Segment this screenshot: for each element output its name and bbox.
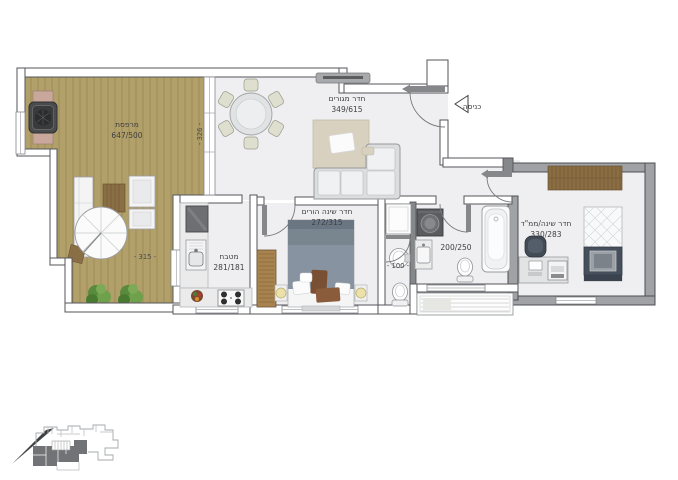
floor-plan-svg: מרפסת 647/500 חדר מגורים 349/615 מטבח 28… bbox=[0, 0, 678, 480]
safe-room-size: 330/283 bbox=[530, 230, 561, 239]
balcony-label: מרפסת bbox=[115, 120, 139, 129]
bathroom-vanity bbox=[415, 240, 432, 269]
safe-room-label: חדר שינה/ממ"ד bbox=[521, 219, 572, 228]
living-room-size: 349/615 bbox=[331, 105, 362, 114]
key-plan bbox=[12, 425, 118, 470]
headboard-panel bbox=[548, 166, 622, 190]
entry-niche bbox=[427, 60, 448, 86]
monitor bbox=[529, 261, 542, 270]
balcony-size: 647/500 bbox=[111, 131, 142, 140]
stove bbox=[218, 290, 244, 306]
fruit-bowl bbox=[191, 290, 203, 302]
floor-plan-page: מרפסת 647/500 חדר מגורים 349/615 מטבח 28… bbox=[0, 0, 678, 480]
master-bedroom-label: חדר שינה הורים bbox=[302, 207, 353, 216]
bathroom-toilet bbox=[457, 258, 473, 282]
wc-toilet bbox=[392, 283, 408, 306]
nightstand-left bbox=[275, 285, 287, 301]
kitchen-size: 281/181 bbox=[213, 263, 244, 272]
bed-bench bbox=[302, 306, 340, 311]
refrigerator bbox=[186, 206, 208, 232]
living-room-label: חדר מגורים bbox=[329, 94, 366, 103]
kitchen-label: מטבח bbox=[219, 252, 238, 261]
patio-umbrella bbox=[75, 207, 127, 259]
wc-size: - 100 - bbox=[387, 262, 410, 270]
keyboard bbox=[528, 272, 542, 276]
bathtub bbox=[482, 206, 510, 272]
bbq-grill bbox=[29, 91, 57, 144]
wc-cabinet bbox=[386, 204, 411, 234]
balcony-depth-dim: - 326 - bbox=[196, 122, 204, 145]
entrance-label: כניסה bbox=[463, 102, 481, 111]
area-rug bbox=[313, 120, 369, 168]
wardrobe bbox=[257, 250, 276, 307]
tv-console bbox=[316, 73, 370, 83]
bathroom-size: 200/250 bbox=[440, 243, 471, 252]
kitchen-sink bbox=[186, 240, 206, 270]
desk-chair bbox=[525, 236, 546, 257]
master-bed bbox=[288, 220, 354, 311]
lamp bbox=[276, 288, 286, 298]
master-bedroom-size: 272/315 bbox=[311, 218, 342, 227]
balcony-width-dim: - 315 - bbox=[134, 253, 157, 261]
washing-machine bbox=[417, 209, 443, 236]
lamp bbox=[356, 288, 366, 298]
louver-vent bbox=[417, 293, 513, 315]
printer bbox=[548, 261, 567, 280]
nightstand-right bbox=[355, 285, 367, 301]
